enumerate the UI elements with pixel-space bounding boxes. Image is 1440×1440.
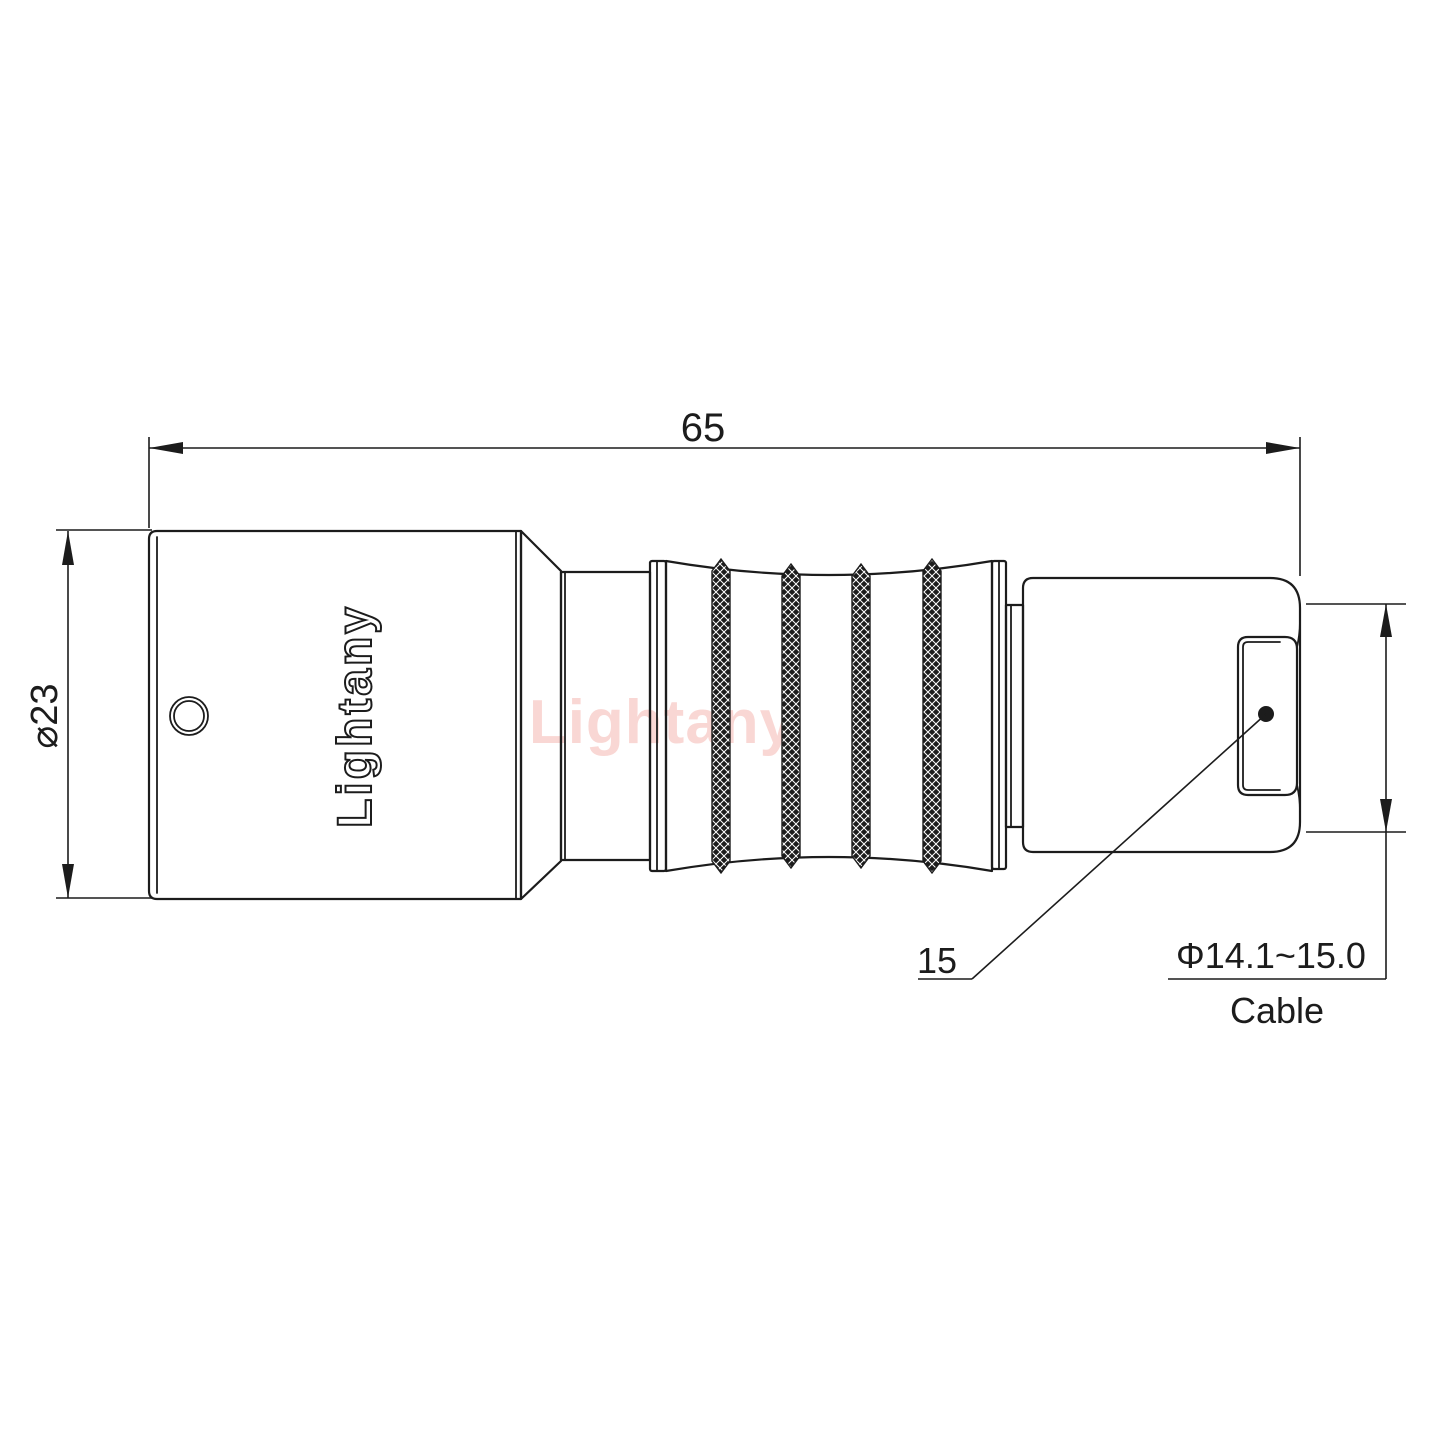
dimension-body-diameter-label: ⌀23 [24, 683, 66, 748]
arrow-left-icon [149, 442, 183, 454]
arrow-up-icon [1380, 604, 1392, 637]
cable-label: Cable [1230, 990, 1324, 1031]
drawing-canvas: Lightany Lightany [0, 0, 1440, 1440]
arrow-right-icon [1266, 442, 1300, 454]
dimension-cable-diameter-label: Φ14.1~15.0 [1176, 935, 1366, 976]
watermark-text: Lightany [529, 688, 795, 757]
knurl-band [712, 559, 730, 873]
knurl-band [923, 559, 941, 873]
leader-nut-length-label: 15 [917, 940, 957, 981]
knurl-band [852, 564, 870, 868]
dimension-body-diameter: ⌀23 [24, 530, 152, 898]
arrow-down-icon [1380, 799, 1392, 832]
knurl-band [782, 564, 800, 868]
arrow-up-icon [62, 531, 74, 565]
arrow-down-icon [62, 864, 74, 898]
brand-engraved-text: Lightany [329, 604, 382, 828]
connector-technical-drawing: Lightany Lightany [0, 0, 1440, 1440]
dimension-overall-length-label: 65 [681, 406, 726, 450]
